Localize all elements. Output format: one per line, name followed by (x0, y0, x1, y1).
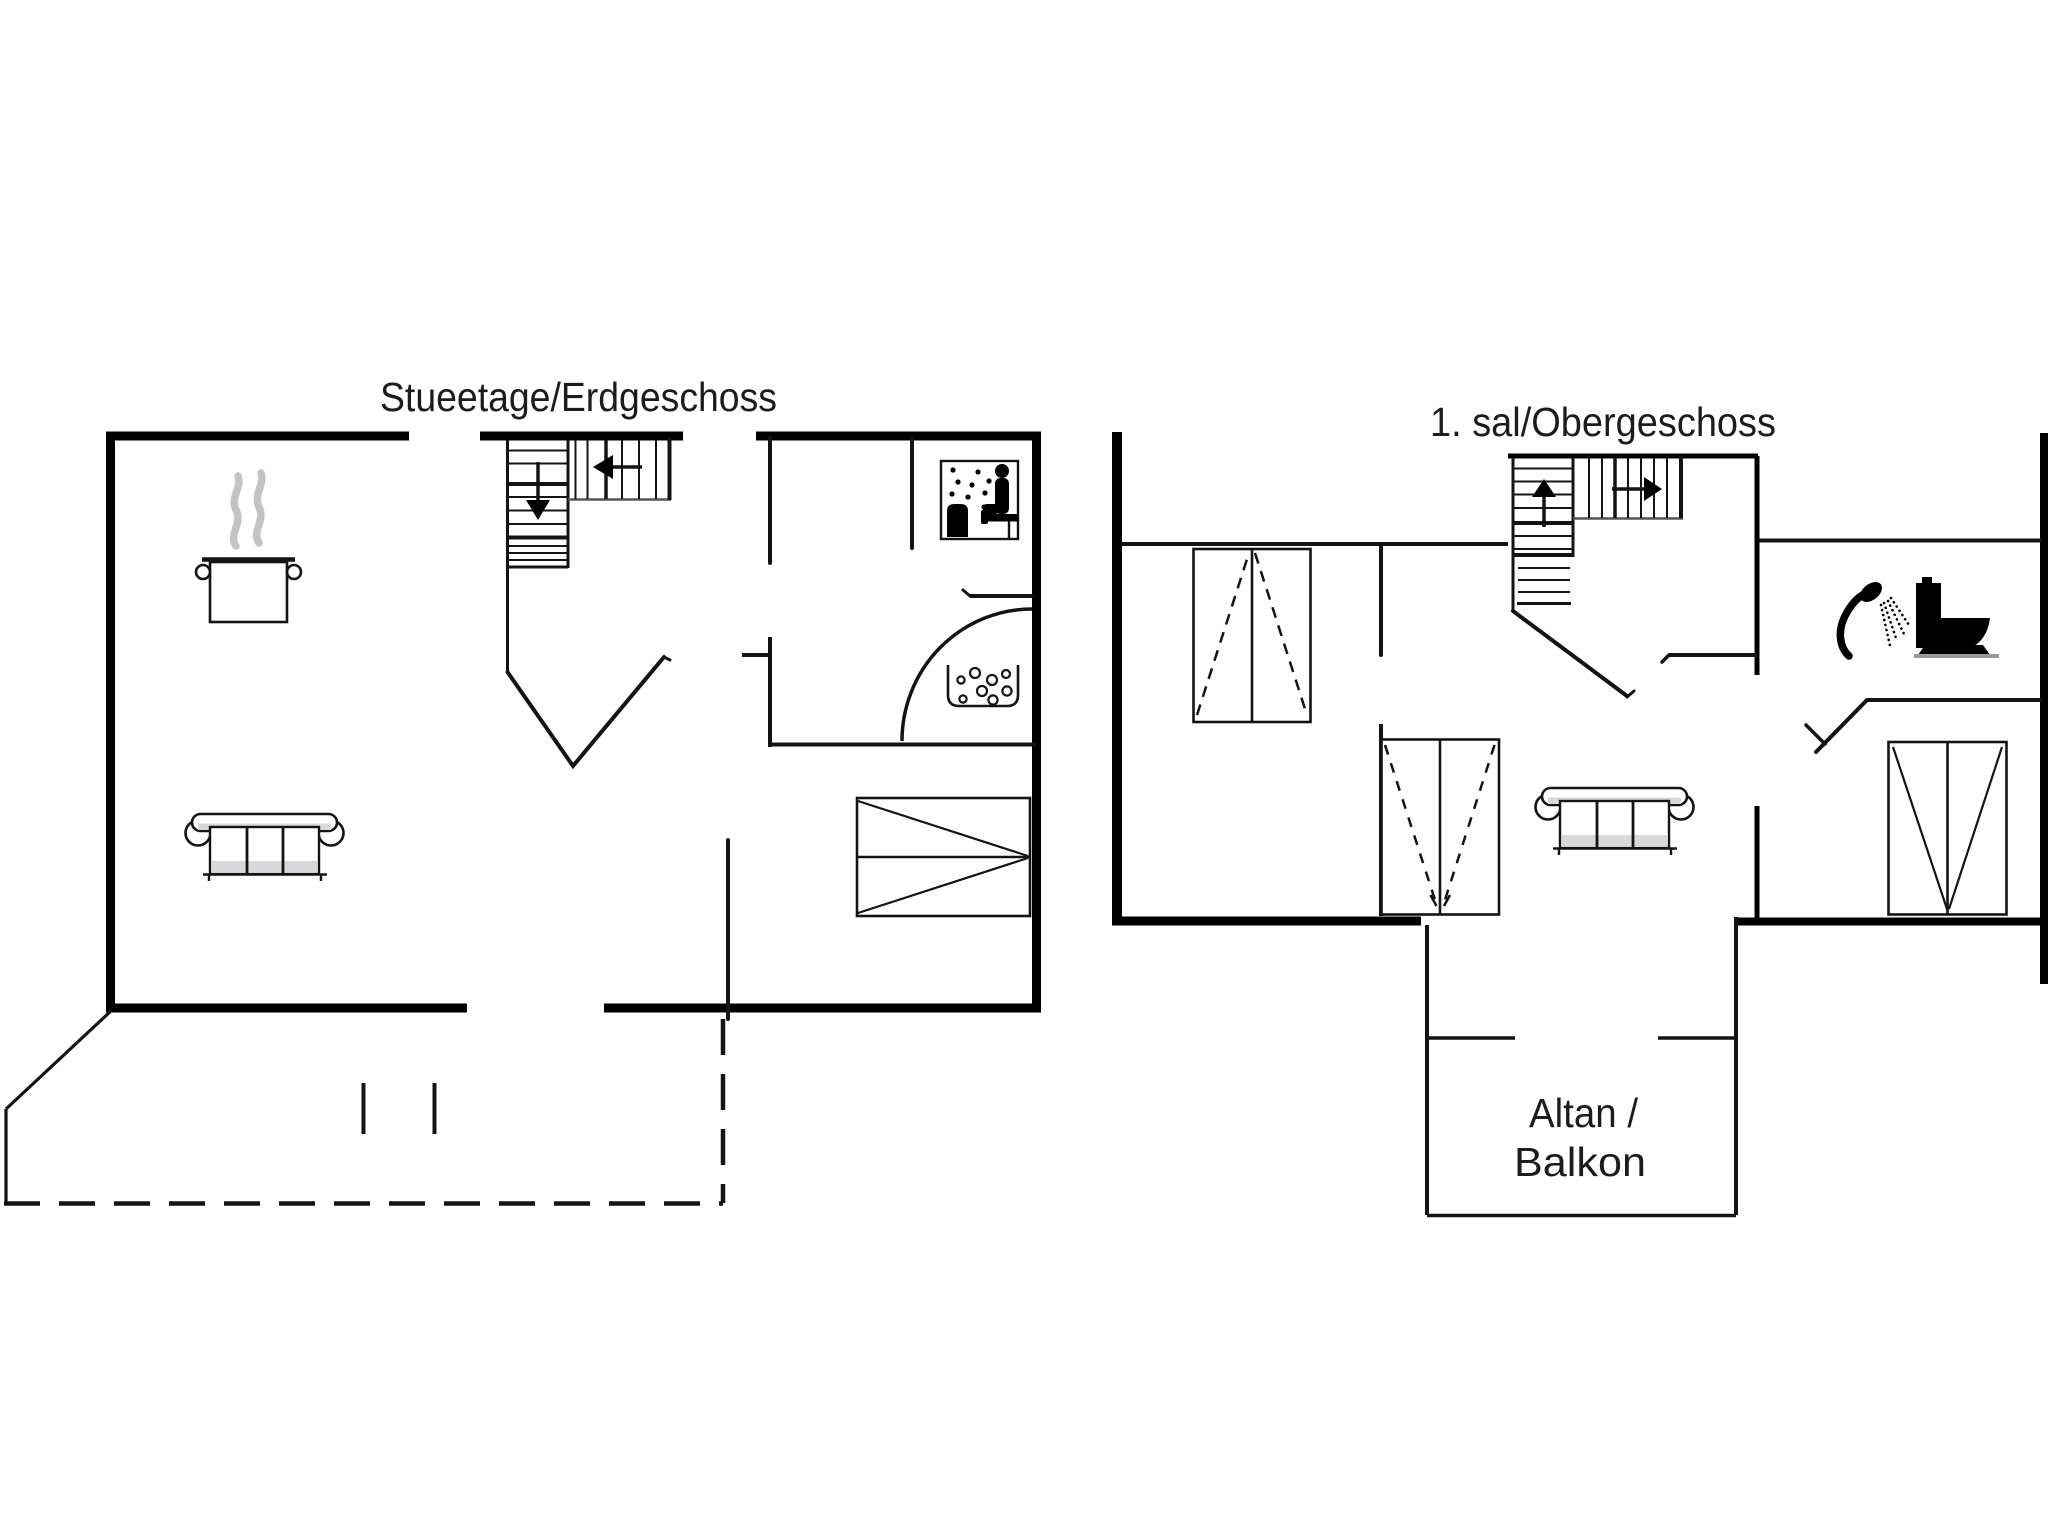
svg-text:Stueetage/Erdgeschoss: Stueetage/Erdgeschoss (380, 374, 777, 420)
svg-text:1. sal/Obergeschoss: 1. sal/Obergeschoss (1430, 399, 1776, 445)
svg-text:Altan /: Altan / (1529, 1090, 1639, 1136)
svg-text:Balkon: Balkon (1514, 1139, 1646, 1185)
